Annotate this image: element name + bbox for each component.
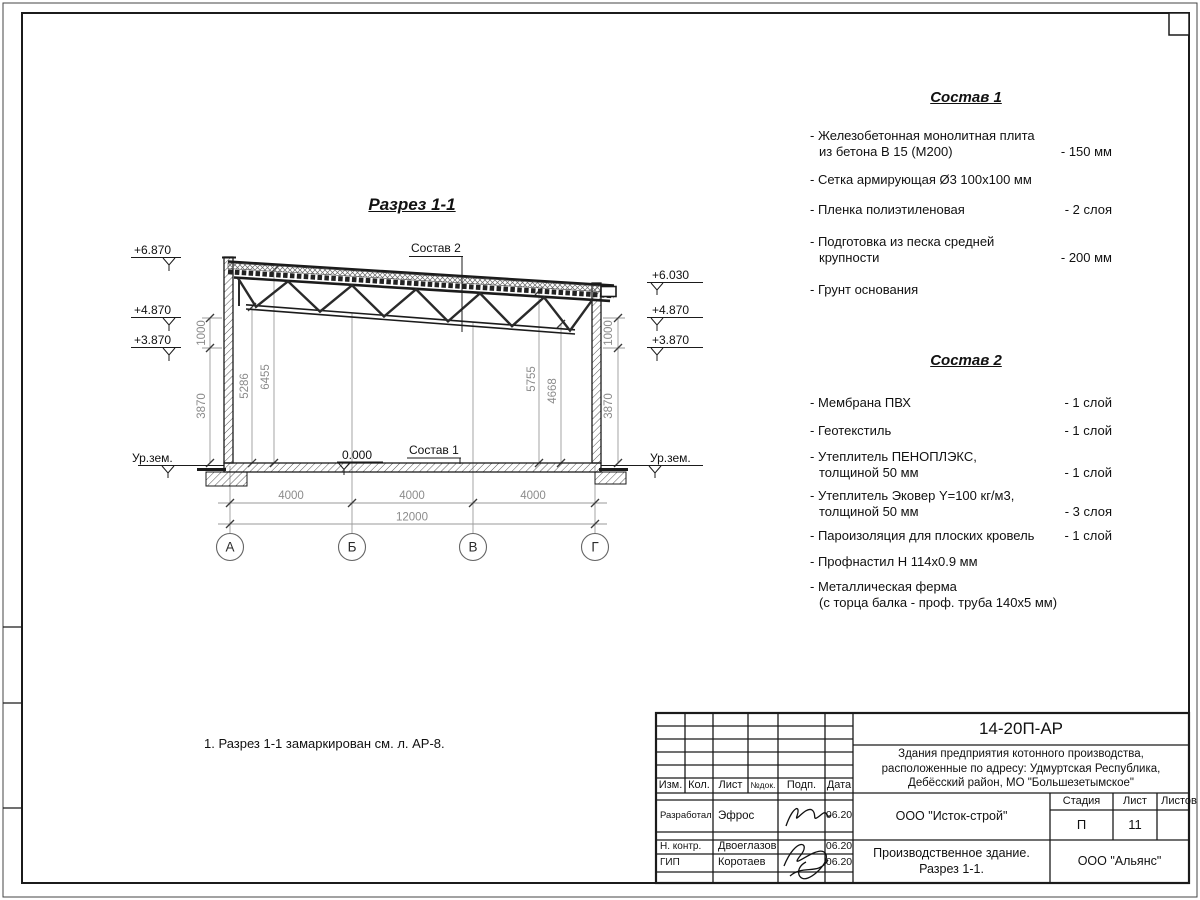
sostav2-pointer-label: Состав 2 xyxy=(411,241,461,255)
signature-nkontr-gip xyxy=(784,844,828,878)
dim-1000-left: 1000 xyxy=(196,320,208,346)
item-text2: крупности xyxy=(810,250,994,266)
sostav2-item: - Мембрана ПВХ - 1 слой xyxy=(810,395,1112,411)
dimension-ticks xyxy=(206,266,622,528)
item-text: - Подготовка из песка средней xyxy=(810,234,994,250)
sostav1-pointer-label: Состав 1 xyxy=(409,443,459,457)
right-wall xyxy=(592,283,601,463)
roof-assembly xyxy=(222,258,616,301)
item-value: - 1 слой xyxy=(1060,528,1112,544)
item-text: - Утеплитель Эковер Y=100 кг/м3, xyxy=(810,488,1014,504)
drawing-name-line: Производственное здание. xyxy=(873,846,1030,862)
stage-header: Стадия xyxy=(1050,793,1113,810)
sostav1-heading: Состав 1 xyxy=(900,89,1032,106)
axis-label-v: В xyxy=(468,540,477,555)
stage-value: П xyxy=(1050,810,1113,840)
item-value: - 1 слой xyxy=(1060,423,1112,439)
elev-left-low: +3.870 xyxy=(134,333,171,347)
project-line: Здания предприятия котонного производств… xyxy=(898,747,1144,762)
drawing-sheet: А Б В Г +6.870 +4.870 +3.870 Ур.зем. +6.… xyxy=(0,0,1200,900)
dim-1000-right: 1000 xyxy=(603,320,615,346)
role-razrabotal: Разработал xyxy=(657,800,715,832)
dim-5286: 5286 xyxy=(239,373,251,399)
sheets-total-header: Листов xyxy=(1157,793,1200,810)
role-nkontr: Н. контр. xyxy=(657,840,715,854)
item-text2: (с торца балка - проф. труба 140x5 мм) xyxy=(810,595,1057,611)
left-footing xyxy=(206,472,247,486)
col-header-list: Лист xyxy=(713,778,748,793)
elev-right-mid: +4.870 xyxy=(652,303,689,317)
sostav1-item: - Пленка полиэтиленовая - 2 слоя xyxy=(810,202,1112,218)
sostav1-item: - Подготовка из песка средней крупности … xyxy=(810,234,1112,265)
name-razrabotal: Эфрос xyxy=(715,800,780,832)
date-razrabotal: 06.20 xyxy=(825,800,853,832)
ground-label-right: Ур.зем. xyxy=(650,451,691,465)
signatures xyxy=(784,809,831,879)
item-value: - 150 мм xyxy=(1057,144,1112,160)
col-header-kol: Кол. xyxy=(685,778,713,793)
binding-boxes xyxy=(3,627,22,808)
item-text2: из бетона В 15 (М200) xyxy=(810,144,1035,160)
project-line: Дебёсский район, МО "Большезетымское" xyxy=(908,776,1134,791)
dim-5755: 5755 xyxy=(526,366,538,392)
axis-label-a: А xyxy=(225,540,234,555)
name-gip: Коротаев xyxy=(715,854,781,872)
floor-slab xyxy=(224,463,601,472)
axis-label-b: Б xyxy=(348,540,357,555)
corner-stamp-box xyxy=(1169,13,1189,35)
item-value: - 1 слой xyxy=(1060,395,1112,411)
sostav2-item: - Профнастил Н 114x0.9 мм xyxy=(810,554,1112,570)
section-drawing: А Б В Г +6.870 +4.870 +3.870 Ур.зем. +6.… xyxy=(131,241,703,561)
item-text: - Грунт основания xyxy=(810,282,918,298)
dimension-labels: 4000 4000 4000 12000 1000 3870 5286 6455… xyxy=(196,320,615,523)
elev-right-low: +3.870 xyxy=(652,333,689,347)
sostav2-item: - Пароизоляция для плоских кровель - 1 с… xyxy=(810,528,1112,544)
dim-span-2: 4000 xyxy=(399,490,425,502)
item-text: - Сетка армирующая Ø3 100x100 мм xyxy=(810,172,1032,188)
drawing-note: 1. Разрез 1-1 замаркирован см. л. АР-8. xyxy=(204,736,445,751)
project-line: расположенные по адресу: Удмуртская Респ… xyxy=(882,762,1161,777)
col-header-izm: Изм. xyxy=(656,778,685,793)
elev-right-top: +6.030 xyxy=(652,268,689,282)
design-org: ООО "Исток-строй" xyxy=(853,793,1050,840)
date-nkontr: 06.20 xyxy=(825,840,853,854)
doc-code: 14-20П-АР xyxy=(853,713,1189,745)
dim-6455: 6455 xyxy=(260,364,272,390)
item-value: - 1 слой xyxy=(1060,465,1112,481)
zero-elevation-label: 0.000 xyxy=(342,448,372,462)
col-header-podp: Подп. xyxy=(778,778,825,793)
project-description: Здания предприятия котонного производств… xyxy=(855,746,1187,792)
sheets-total-value xyxy=(1157,810,1189,840)
dim-3870-left: 3870 xyxy=(196,393,208,419)
sostav1-item: - Грунт основания xyxy=(810,282,1112,298)
drawing-name-line: Разрез 1-1. xyxy=(919,862,984,878)
item-text: - Пароизоляция для плоских кровель xyxy=(810,528,1034,544)
sheet-header: Лист xyxy=(1113,793,1157,810)
item-text: - Мембрана ПВХ xyxy=(810,395,911,411)
sostav2-item: - Геотекстиль - 1 слой xyxy=(810,423,1112,439)
dim-total: 12000 xyxy=(396,512,428,524)
elev-left-mid: +4.870 xyxy=(134,303,171,317)
drawing-name: Производственное здание. Разрез 1-1. xyxy=(853,840,1050,883)
sostav2-item: - Утеплитель ПЕНОПЛЭКС, толщиной 50 мм -… xyxy=(810,449,1112,480)
sostav1-item: - Сетка армирующая Ø3 100x100 мм xyxy=(810,172,1112,188)
name-nkontr: Двоеглазов xyxy=(715,840,781,854)
item-text: - Пленка полиэтиленовая xyxy=(810,202,965,218)
roof-edge-beam xyxy=(601,287,616,297)
contractor-org: ООО "Альянс" xyxy=(1050,840,1189,883)
axis-bubbles: А Б В Г xyxy=(217,534,609,561)
col-header-ndok: №док. xyxy=(748,778,778,793)
item-text: - Утеплитель ПЕНОПЛЭКС, xyxy=(810,449,977,465)
item-text2: толщиной 50 мм xyxy=(810,504,1014,520)
section-title: Разрез 1-1 xyxy=(352,195,472,215)
item-text2: толщиной 50 мм xyxy=(810,465,977,481)
axis-label-g: Г xyxy=(591,540,599,555)
item-text: - Железобетонная монолитная плита xyxy=(810,128,1035,144)
right-footing xyxy=(595,472,626,484)
dim-4668: 4668 xyxy=(547,378,559,404)
dim-3870-right: 3870 xyxy=(603,393,615,419)
item-text: - Геотекстиль xyxy=(810,423,891,439)
item-value: - 200 мм xyxy=(1057,250,1112,266)
col-header-data: Дата xyxy=(825,778,853,793)
sostav1-item: - Железобетонная монолитная плита из бет… xyxy=(810,128,1112,159)
sheet-number: 11 xyxy=(1113,810,1157,840)
item-text: - Профнастил Н 114x0.9 мм xyxy=(810,554,978,570)
item-value: - 2 слоя xyxy=(1061,202,1112,218)
left-wall xyxy=(224,257,233,463)
elev-left-top: +6.870 xyxy=(134,243,171,257)
bottom-chord-top xyxy=(246,305,575,330)
sostav2-heading: Состав 2 xyxy=(900,352,1032,369)
date-gip: 06.20 xyxy=(825,854,853,872)
dim-span-1: 4000 xyxy=(278,490,304,502)
role-gip: ГИП xyxy=(657,854,715,872)
item-text: - Металлическая ферма xyxy=(810,579,1057,595)
sostav2-item: - Утеплитель Эковер Y=100 кг/м3, толщино… xyxy=(810,488,1112,519)
sostav2-item: - Металлическая ферма (с торца балка - п… xyxy=(810,579,1112,610)
dim-span-3: 4000 xyxy=(520,490,546,502)
ground-label-left: Ур.зем. xyxy=(132,451,173,465)
item-value: - 3 слоя xyxy=(1061,504,1112,520)
